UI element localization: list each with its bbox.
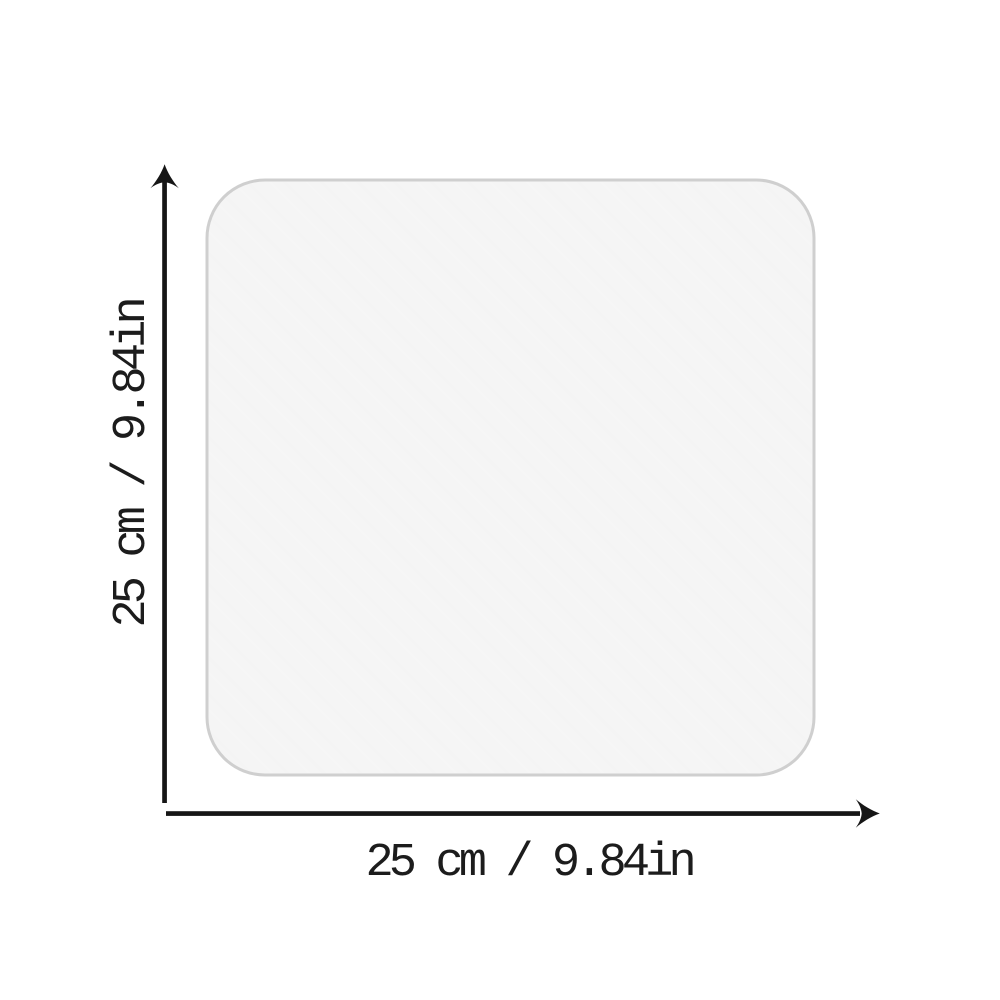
svg-text:25 cm / 9.84in: 25 cm / 9.84in xyxy=(106,300,159,628)
svg-text:25 cm / 9.84in: 25 cm / 9.84in xyxy=(366,837,694,890)
